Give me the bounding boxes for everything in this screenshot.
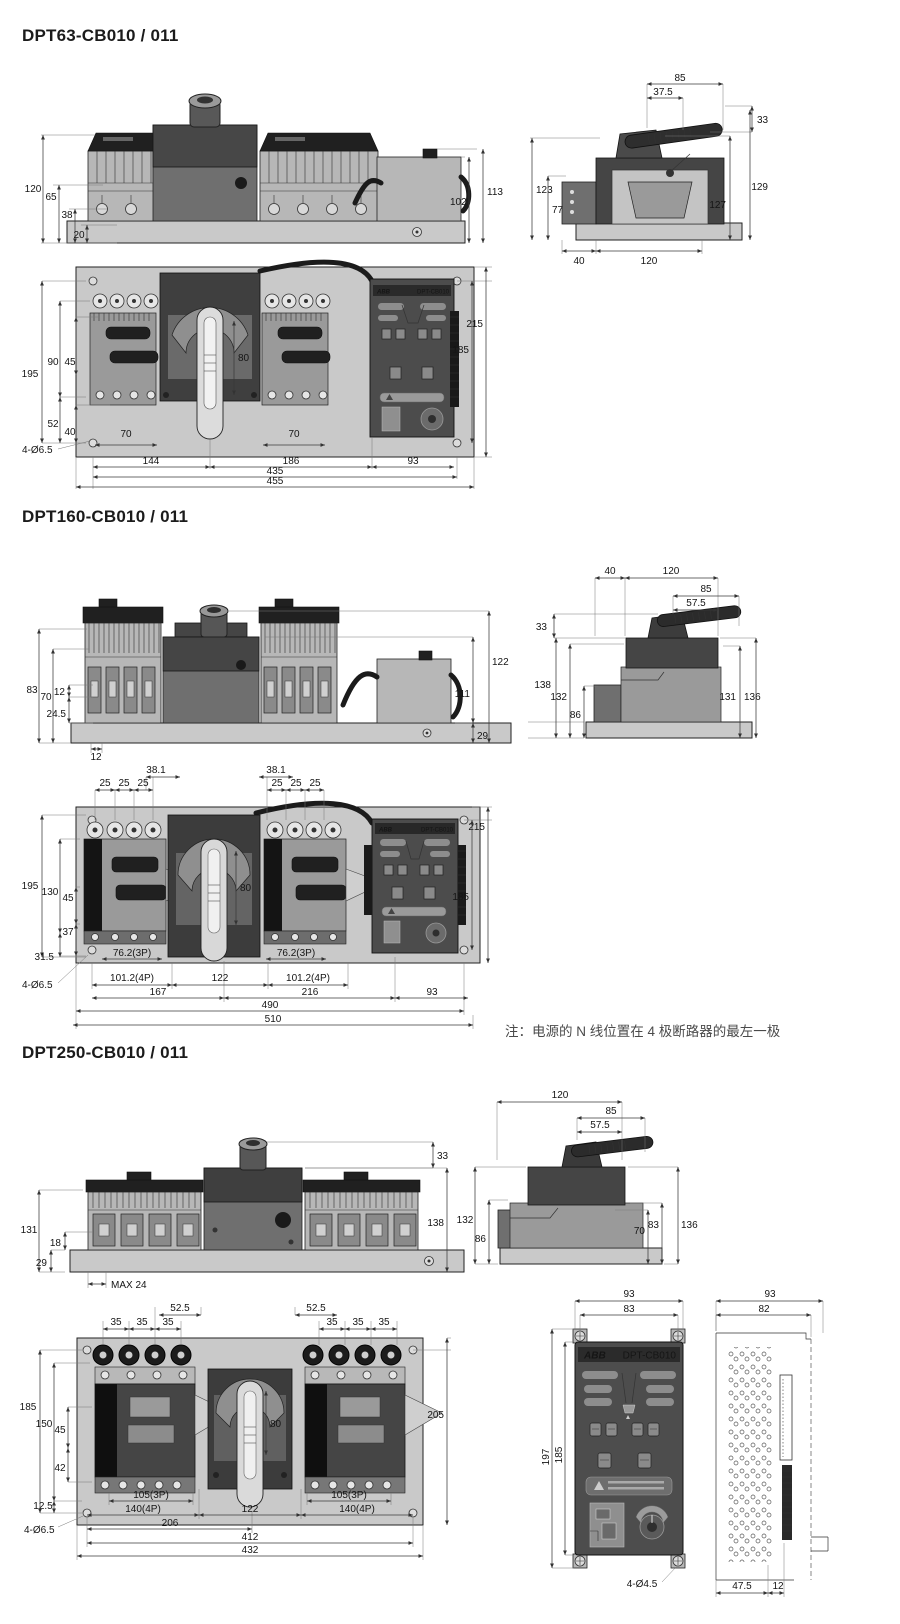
controller-side-view: 93 82 47.5 12 — [706, 1285, 896, 1624]
dim-label: 102 — [450, 197, 467, 208]
dim-label: 86 — [570, 710, 582, 721]
dim-label: 105(3P) — [133, 1490, 169, 1501]
mounting-hole — [453, 439, 461, 447]
section-title-dpt160: DPT160-CB010 / 011 — [22, 507, 188, 527]
device-drawing: ABB DPT-CB010 — [76, 803, 480, 963]
dpt160-plan-view: ABB DPT-CB010 38.1 38.1 25 25 25 25 25 2… — [20, 735, 510, 1035]
controller-model-label: DPT-CB010 — [417, 290, 450, 296]
dim-label: 52 — [47, 419, 59, 430]
dim-label: 144 — [143, 456, 160, 467]
mounting-hole — [460, 946, 468, 954]
device-drawing — [586, 605, 752, 738]
motor-operator — [153, 94, 257, 221]
dim-label: 33 — [536, 622, 548, 633]
dim-label: 113 — [487, 187, 503, 198]
motor-operator — [208, 1369, 292, 1507]
dim-label: 216 — [302, 987, 319, 998]
dim-label: 132 — [550, 692, 567, 703]
dpt250-side-view: 120 85 57.5 132 86 70 83 136 — [450, 1060, 702, 1278]
dim-label: 80 — [240, 883, 252, 894]
controller-panel: ABB DPT-CB010 — [364, 819, 466, 953]
top-edge — [716, 1333, 811, 1339]
dim-label: 93 — [623, 1289, 635, 1300]
dim-label: 215 — [466, 319, 483, 330]
dim-label: 20 — [73, 230, 85, 241]
base-plate — [576, 223, 742, 240]
device-drawing — [498, 1136, 662, 1264]
dim-label: 85 — [700, 584, 712, 595]
dim-label: 35 — [110, 1317, 122, 1328]
handle-lever — [571, 1136, 654, 1158]
dim-label: 70 — [120, 429, 132, 440]
dim-label: 111 — [455, 689, 471, 700]
dim-label: 45 — [64, 357, 76, 368]
terminal-strip — [458, 845, 466, 925]
dim-label: 90 — [47, 357, 59, 368]
base-plate — [500, 1248, 662, 1264]
device-drawing: ABB DPT-CB010 — [573, 1329, 685, 1568]
controller-model-label: DPT-CB010 — [421, 828, 454, 834]
dim-label: 70 — [40, 692, 52, 703]
dim-label: 70 — [634, 1226, 646, 1237]
dim-label: 93 — [407, 456, 419, 467]
dim-label: 150 — [36, 1419, 53, 1430]
breaker-right — [259, 599, 339, 723]
dim-label: 131 — [21, 1225, 38, 1236]
abb-logo: ABB — [583, 1351, 606, 1362]
breaker-right — [260, 133, 378, 221]
dim-label: 185 — [20, 1402, 37, 1413]
dim-label: 185 — [452, 345, 469, 356]
dim-label: 132 — [457, 1215, 474, 1226]
dim-label: 12 — [54, 687, 66, 698]
dim-label: 412 — [242, 1532, 259, 1543]
dim-label: 57.5 — [590, 1120, 610, 1131]
mounting-holes-label: 4-Ø6.5 — [22, 980, 53, 991]
device-drawing: ABB DPT-CB010 — [76, 262, 474, 457]
dim-label: 83 — [26, 685, 38, 696]
dim-label: 37.5 — [653, 87, 673, 98]
din-clip — [811, 1537, 828, 1551]
dim-label: 82 — [758, 1304, 770, 1315]
dim-label: 40 — [604, 566, 616, 577]
dim-label: 80 — [238, 353, 250, 364]
dim-label: 38.1 — [146, 765, 166, 776]
dim-label: 18 — [50, 1238, 62, 1249]
mounting-holes-label: 4-Ø6.5 — [24, 1525, 55, 1536]
dim-label: 83 — [623, 1304, 635, 1315]
dim-label: 40 — [573, 256, 585, 267]
side-attachment — [594, 685, 621, 722]
dim-label: 136 — [744, 692, 761, 703]
dim-label: 38.1 — [266, 765, 286, 776]
dim-label: 40 — [64, 427, 76, 438]
abb-logo: ABB — [376, 290, 391, 296]
dpt63-plan-view: ABB DPT-CB010 195 90 45 52 40 80 70 70 1… — [20, 255, 500, 495]
dim-label: 45 — [54, 1425, 66, 1436]
dim-label: 42 — [54, 1463, 66, 1474]
dim-label: 129 — [751, 182, 768, 193]
device-drawing — [70, 1138, 464, 1272]
dim-label: 31.5 — [35, 952, 55, 963]
handle-lever — [624, 122, 723, 149]
dim-label: 185 — [554, 1446, 565, 1463]
dpt63-front-view: 120 65 38 20 113 102 — [25, 85, 505, 250]
datasheet-page: DPT63-CB010 / 011 DPT160-CB010 / 011 DPT… — [0, 0, 900, 1624]
dim-label: 52.5 — [306, 1303, 326, 1314]
dim-label: 33 — [757, 115, 769, 126]
dim-label: 25 — [309, 778, 321, 789]
dim-label: 123 — [536, 185, 553, 196]
dim-label: 138 — [534, 680, 551, 691]
dim-label: 432 — [242, 1545, 259, 1556]
dim-label: 510 — [265, 1014, 282, 1025]
dim-label: 47.5 — [732, 1581, 752, 1592]
mounting-hole — [409, 1509, 417, 1517]
terminal-connector — [780, 1375, 792, 1460]
dim-label: 80 — [270, 1419, 282, 1430]
dim-label: 197 — [541, 1448, 552, 1465]
dpt160-front-view: 83 70 12 24.5 12 122 111 29 — [25, 545, 510, 757]
dim-label: 35 — [136, 1317, 148, 1328]
dim-label: 35 — [378, 1317, 390, 1328]
dim-label: 25 — [99, 778, 111, 789]
dim-label: 25 — [290, 778, 302, 789]
dim-label: 52.5 — [170, 1303, 190, 1314]
dim-label: 12 — [772, 1581, 784, 1592]
terminal-strip — [450, 311, 459, 407]
dim-label: 185 — [452, 892, 469, 903]
dim-label: 83 — [648, 1220, 660, 1231]
mounting-hole — [83, 1346, 91, 1354]
n-pole-note: 注：电源的 N 线位置在 4 极断路器的最左一极 — [505, 1020, 780, 1040]
dim-label: 120 — [552, 1090, 569, 1101]
dim-label: 65 — [45, 192, 57, 203]
dim-label: 120 — [663, 566, 680, 577]
terminal-connector — [782, 1465, 792, 1540]
dim-label: 70 — [288, 429, 300, 440]
warning-label — [586, 1477, 672, 1495]
mounting-holes-label: 4-Ø6.5 — [22, 445, 53, 456]
dim-label: 85 — [605, 1106, 617, 1117]
dim-label: 45 — [62, 893, 74, 904]
dim-label: 490 — [262, 1000, 279, 1011]
dim-label: 195 — [22, 369, 39, 380]
breaker-left — [83, 599, 163, 723]
dim-label: 86 — [475, 1234, 487, 1245]
dim-label: 140(4P) — [339, 1504, 375, 1515]
cable — [343, 674, 377, 705]
dim-label: 38 — [61, 210, 73, 221]
dpt63-side-view: 85 37.5 33 123 77 127 129 40 120 — [520, 70, 770, 270]
dim-label: 206 — [162, 1518, 179, 1529]
section-title-dpt63: DPT63-CB010 / 011 — [22, 26, 178, 46]
mounting-hole — [88, 946, 96, 954]
dim-label: 93 — [764, 1289, 776, 1300]
dim-label: 77 — [552, 205, 564, 216]
dim-label: 12.5 — [33, 1501, 53, 1512]
device-drawing — [67, 94, 469, 243]
dim-label: 85 — [674, 73, 686, 84]
dim-label: 35 — [352, 1317, 364, 1328]
dpt250-plan-view: 52.5 52.5 35 35 35 35 35 35 185 150 45 4… — [10, 1255, 465, 1575]
dim-label: 37 — [62, 927, 74, 938]
dim-label: 140(4P) — [125, 1504, 161, 1515]
dim-label: 25 — [118, 778, 130, 789]
dim-label: 35 — [162, 1317, 174, 1328]
terminal-strip — [364, 845, 372, 915]
ventilation-pattern — [728, 1347, 772, 1562]
dim-label: 455 — [267, 476, 284, 487]
dim-label: 138 — [427, 1218, 444, 1229]
base-plate — [67, 221, 465, 243]
dim-label: 120 — [25, 184, 42, 195]
dim-label: 25 — [271, 778, 283, 789]
dpt160-side-view: 40 120 85 57.5 33 138 132 86 131 136 — [518, 540, 770, 745]
dim-label: 186 — [283, 456, 300, 467]
dim-label: 57.5 — [686, 598, 706, 609]
dim-label: 120 — [641, 256, 658, 267]
mounting-hole — [89, 439, 97, 447]
dim-label: 130 — [42, 887, 59, 898]
breaker-right — [303, 1172, 420, 1250]
breaker-left — [86, 1172, 203, 1250]
dim-label: 76.2(3P) — [113, 948, 151, 959]
motor-operator — [163, 605, 259, 723]
motor-operator — [204, 1138, 302, 1250]
mounting-hole — [83, 1509, 91, 1517]
dim-label: 33 — [437, 1151, 449, 1162]
dim-label: 215 — [468, 822, 485, 833]
dim-label: 76.2(3P) — [277, 948, 315, 959]
controller-panel: ABB DPT-CB010 — [370, 279, 459, 437]
dim-label: 122 — [212, 973, 229, 984]
mounting-hole — [89, 277, 97, 285]
dim-label: 24.5 — [47, 709, 67, 720]
base-plate — [586, 722, 752, 738]
device-drawing — [716, 1333, 828, 1580]
dim-label: 131 — [719, 692, 736, 703]
dim-label: 136 — [681, 1220, 698, 1231]
controller-model-label: DPT-CB010 — [623, 1351, 677, 1362]
dim-label: 127 — [709, 200, 726, 211]
side-attachment — [562, 182, 596, 224]
controller-front-view: ABB DPT-CB010 — [540, 1285, 708, 1624]
mounting-holes-label: 4-Ø4.5 — [627, 1579, 658, 1590]
dim-label: 205 — [427, 1410, 444, 1421]
dim-label: 105(3P) — [331, 1490, 367, 1501]
dim-label: 101.2(4P) — [286, 973, 330, 984]
abb-logo: ABB — [378, 828, 393, 834]
dim-label: 35 — [326, 1317, 338, 1328]
controller-box — [343, 651, 460, 723]
dim-label: 122 — [492, 657, 509, 668]
dim-label: 167 — [150, 987, 167, 998]
dim-label: 101.2(4P) — [110, 973, 154, 984]
dim-label: 195 — [22, 881, 39, 892]
device-drawing — [77, 1338, 442, 1525]
dim-label: 93 — [426, 987, 438, 998]
device-drawing — [71, 599, 511, 743]
section-title-dpt250: DPT250-CB010 / 011 — [22, 1043, 188, 1063]
dim-label: 25 — [137, 778, 149, 789]
dim-label: 122 — [242, 1504, 259, 1515]
device-drawing — [562, 122, 742, 240]
